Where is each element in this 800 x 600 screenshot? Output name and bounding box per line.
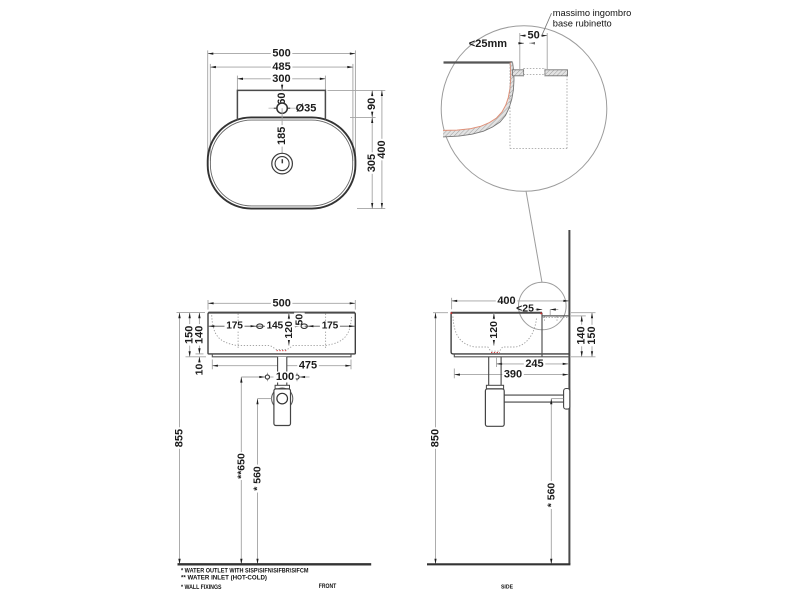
svg-text:base rubinetto: base rubinetto: [553, 19, 612, 29]
svg-text:10: 10: [193, 364, 205, 376]
svg-text:<25: <25: [516, 302, 534, 314]
svg-text:* WATER OUTLET WITH SISP\SIFN: * WATER OUTLET WITH SISP\SIFN\SIFBR\SIFC…: [181, 567, 309, 574]
svg-text:855: 855: [174, 429, 186, 447]
svg-text:400: 400: [376, 140, 388, 158]
svg-text:50: 50: [527, 29, 539, 41]
svg-text:* WALL FIXINGS: * WALL FIXINGS: [181, 584, 222, 591]
svg-text:140: 140: [193, 326, 205, 344]
svg-text:145: 145: [267, 321, 284, 332]
svg-text:**650: **650: [235, 453, 247, 479]
svg-text:** WATER INLET (HOT-COLD): ** WATER INLET (HOT-COLD): [181, 575, 267, 582]
svg-text:245: 245: [525, 358, 543, 370]
svg-text:150: 150: [586, 326, 598, 344]
svg-text:500: 500: [272, 48, 290, 60]
svg-text:90: 90: [366, 98, 378, 110]
svg-text:185: 185: [276, 127, 288, 145]
svg-text:<25mm: <25mm: [469, 38, 507, 50]
svg-text:175: 175: [322, 321, 339, 332]
svg-text:120: 120: [488, 321, 500, 339]
svg-text:175: 175: [226, 321, 243, 332]
svg-text:390: 390: [504, 369, 522, 381]
svg-text:300: 300: [272, 73, 290, 85]
svg-text:475: 475: [299, 360, 317, 372]
svg-text:SIDE: SIDE: [501, 584, 513, 590]
svg-text:massimo ingombro: massimo ingombro: [553, 8, 632, 18]
svg-text:850: 850: [430, 429, 442, 447]
svg-text:500: 500: [272, 297, 290, 309]
svg-text:* 560: * 560: [252, 466, 264, 491]
svg-text:485: 485: [272, 61, 290, 73]
svg-text:100: 100: [276, 371, 294, 383]
svg-text:* 560: * 560: [545, 483, 557, 508]
svg-text:FRONT: FRONT: [319, 583, 337, 590]
svg-text:Ø35: Ø35: [296, 103, 317, 115]
svg-text:400: 400: [497, 295, 515, 307]
